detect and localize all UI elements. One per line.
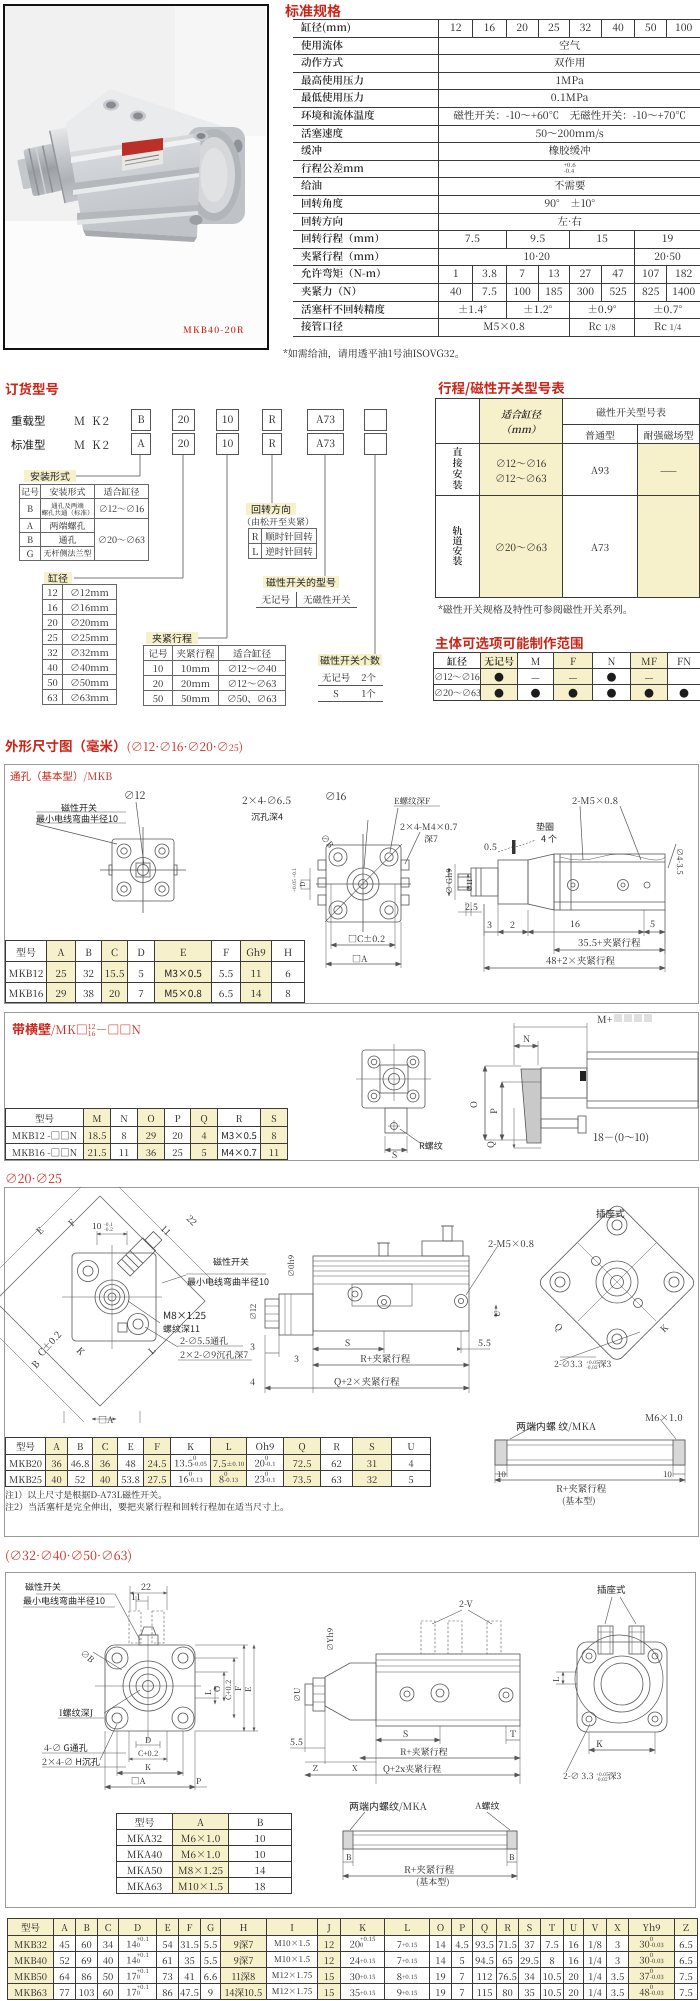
svg-text:R+夹紧行程: R+夹紧行程	[400, 1745, 448, 1758]
svg-text:∅12: ∅12	[124, 788, 145, 803]
svg-text:□A: □A	[131, 1775, 147, 1787]
svg-text:∅ Gh9: ∅ Gh9	[444, 868, 455, 894]
svg-text:磁性开关: 磁性开关	[25, 1580, 61, 1593]
svg-text:2×4-∅6.5: 2×4-∅6.5	[242, 792, 291, 807]
svg-text:22: 22	[141, 1580, 151, 1593]
svg-text:∅B: ∅B	[78, 1647, 97, 1666]
svg-text:∅U: ∅U	[292, 1687, 303, 1702]
svg-text:O: O	[212, 1686, 223, 1692]
svg-text:∅4-3.5: ∅4-3.5	[674, 848, 685, 875]
svg-text:-0.02: -0.02	[596, 1776, 608, 1783]
svg-text:R+夹紧行程: R+夹紧行程	[556, 1481, 607, 1495]
svg-text:L: L	[551, 1677, 562, 1682]
svg-text:R+夹紧行程: R+夹紧行程	[360, 1351, 411, 1365]
svg-text:插座式: 插座式	[597, 1582, 626, 1596]
svg-text:2×4-∅ H沉孔: 2×4-∅ H沉孔	[42, 1755, 100, 1768]
svg-text:□C±0.2: □C±0.2	[348, 932, 385, 945]
svg-text:P: P	[487, 1108, 500, 1114]
svg-text:R螺纹: R螺纹	[419, 1139, 443, 1152]
svg-text:磁性开关: 磁性开关	[213, 1255, 249, 1268]
svg-text:C±0.2: C±0.2	[34, 1328, 64, 1359]
svg-text:E: E	[243, 1687, 254, 1692]
svg-text:N: N	[523, 1032, 530, 1045]
svg-text:4-∅ G通孔: 4-∅ G通孔	[44, 1741, 88, 1754]
svg-text:M8×1.25: M8×1.25	[163, 1307, 207, 1322]
svg-text:两端内螺 纹/MKA: 两端内螺 纹/MKA	[516, 1418, 597, 1433]
svg-text:Q+2x夹紧行程: Q+2x夹紧行程	[383, 1762, 441, 1775]
svg-text:∅0h9: ∅0h9	[286, 1255, 297, 1277]
svg-text:Z: Z	[313, 1763, 318, 1774]
svg-text:B: B	[509, 1852, 514, 1863]
svg-text:K: K	[145, 1762, 151, 1773]
svg-text:10: 10	[92, 1220, 102, 1232]
svg-text:11: 11	[158, 1222, 174, 1238]
svg-text:K: K	[596, 1737, 603, 1750]
svg-text:2-∅ 3.3: 2-∅ 3.3	[563, 1770, 594, 1782]
svg-text:M6×1.0: M6×1.0	[645, 1410, 683, 1424]
svg-text:10: 10	[497, 1469, 506, 1480]
svg-text:4: 4	[250, 1375, 255, 1388]
svg-text:∅Yh9: ∅Yh9	[325, 1628, 336, 1651]
svg-text:-0.02: -0.02	[586, 1364, 598, 1371]
svg-text:∅B: ∅B	[318, 832, 337, 851]
svg-text:Q+2×夹紧行程: Q+2×夹紧行程	[334, 1374, 400, 1388]
svg-text:S: S	[392, 1148, 397, 1159]
svg-text:R+夹紧行程: R+夹紧行程	[404, 1862, 455, 1876]
svg-text:T: T	[510, 1727, 516, 1740]
svg-text:K: K	[657, 1321, 671, 1335]
svg-text:D: D	[145, 1735, 151, 1746]
svg-text:-0.2: -0.2	[104, 1226, 113, 1233]
svg-text:2.5: 2.5	[465, 900, 478, 913]
svg-text:2: 2	[510, 918, 515, 931]
svg-text:C+0.2: C+0.2	[138, 1748, 158, 1759]
svg-text:5.5: 5.5	[290, 1735, 303, 1748]
svg-text:沉孔深4: 沉孔深4	[251, 810, 283, 823]
svg-text:2-M5×0.8: 2-M5×0.8	[488, 1236, 534, 1250]
svg-text:3: 3	[250, 1340, 255, 1353]
svg-text:2-∅3.3: 2-∅3.3	[554, 1358, 583, 1370]
svg-text:E: E	[33, 1224, 46, 1237]
svg-text:5.5: 5.5	[478, 1336, 491, 1349]
svg-text:4 个: 4 个	[541, 832, 557, 845]
svg-text:∅12: ∅12	[248, 1303, 259, 1320]
svg-text:2-∅5.5通孔: 2-∅5.5通孔	[180, 1334, 228, 1347]
svg-text:S: S	[403, 1727, 408, 1740]
svg-text:P: P	[196, 1776, 201, 1787]
svg-text:K: K	[74, 1344, 88, 1358]
svg-text:2×2-∅9沉孔深7: 2×2-∅9沉孔深7	[180, 1348, 248, 1361]
svg-text:+0.05 +0.1: +0.05 +0.1	[291, 868, 298, 892]
svg-text:5: 5	[650, 917, 655, 930]
svg-text:插座式: 插座式	[596, 1206, 625, 1220]
svg-text:最小电线弯曲半径10: 最小电线弯曲半径10	[187, 1275, 269, 1288]
svg-text:深3: 深3	[608, 1770, 622, 1782]
svg-text:Q: Q	[552, 1320, 566, 1334]
svg-text:3: 3	[487, 918, 492, 931]
svg-text:D: D	[298, 882, 308, 887]
svg-text:B: B	[346, 1852, 351, 1863]
svg-text:S: S	[345, 1336, 350, 1349]
svg-text:深3: 深3	[598, 1358, 612, 1370]
svg-text:2-V: 2-V	[459, 1597, 473, 1610]
svg-text:L: L	[145, 1344, 158, 1357]
svg-text:A螺纹: A螺纹	[475, 1799, 499, 1812]
svg-text:B: B	[28, 1357, 43, 1371]
svg-text:2-M5×0.8: 2-M5×0.8	[572, 793, 618, 807]
svg-text:(基本型): (基本型)	[562, 1494, 596, 1507]
svg-text:22: 22	[184, 1212, 200, 1228]
svg-text:Q: Q	[484, 1141, 497, 1148]
svg-text:深7: 深7	[424, 832, 438, 845]
svg-text:F: F	[65, 1216, 78, 1229]
svg-text:E螺纹深F: E螺纹深F	[394, 795, 431, 807]
svg-text:两端内螺纹/MKA: 两端内螺纹/MKA	[349, 1798, 428, 1813]
svg-text:48+2×夹紧行程: 48+2×夹紧行程	[546, 953, 615, 967]
svg-text:□A: □A	[98, 1413, 114, 1426]
svg-text:35.5+夹紧行程: 35.5+夹紧行程	[578, 935, 641, 949]
svg-text:3: 3	[294, 1352, 299, 1365]
svg-text:(基本型): (基本型)	[416, 1875, 450, 1888]
svg-text:∅H: ∅H	[465, 879, 475, 892]
svg-text:∅16: ∅16	[325, 789, 346, 804]
svg-text:O: O	[467, 1101, 480, 1108]
svg-text:最小电线弯曲半径10: 最小电线弯曲半径10	[23, 1594, 105, 1607]
svg-text:0.5: 0.5	[484, 840, 497, 853]
svg-text:□A: □A	[352, 952, 368, 965]
svg-text:18－(0～10): 18－(0～10)	[593, 1130, 649, 1145]
svg-text:10: 10	[663, 1469, 672, 1480]
svg-text:I螺纹深J: I螺纹深J	[59, 1706, 94, 1719]
svg-text:U: U	[492, 1310, 503, 1317]
svg-text:16: 16	[570, 917, 580, 930]
svg-text:最小电线弯曲半径10: 最小电线弯曲半径10	[36, 812, 118, 825]
svg-text:M+: M+	[597, 1011, 613, 1026]
svg-text:11: 11	[131, 1590, 141, 1603]
svg-text:X: X	[352, 1763, 358, 1774]
